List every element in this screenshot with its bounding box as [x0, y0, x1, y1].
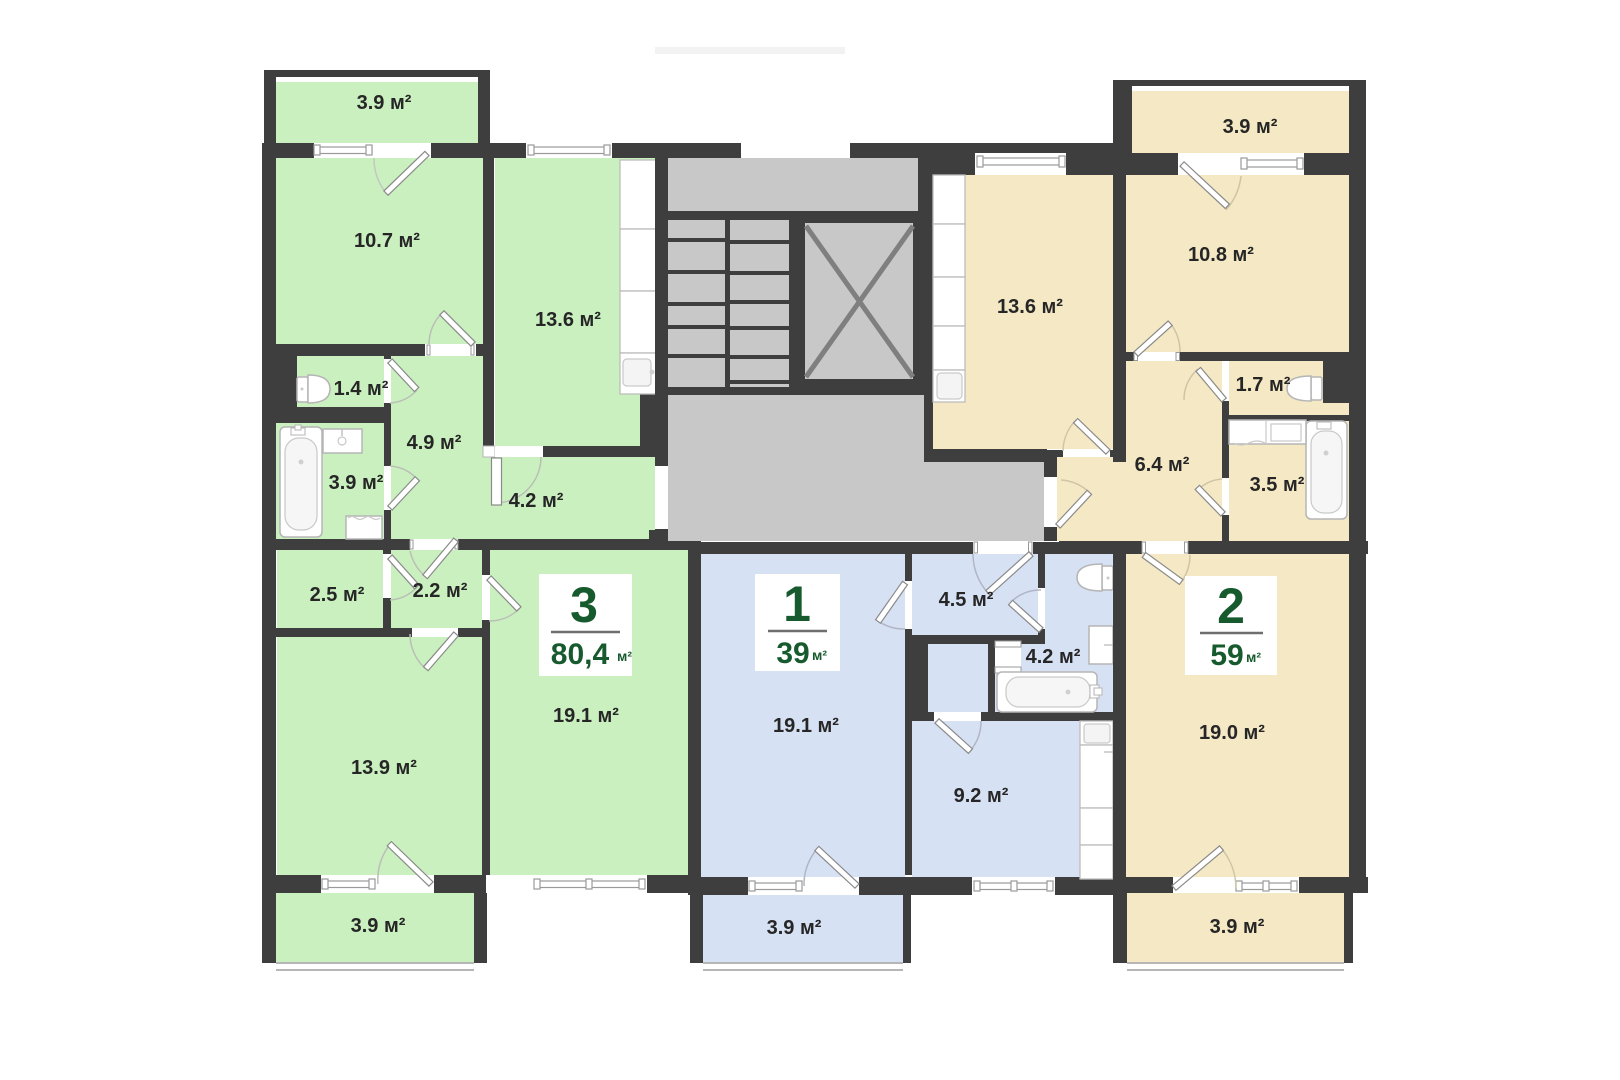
- svg-text:3.9 м²: 3.9 м²: [329, 472, 384, 494]
- svg-text:2.2 м²: 2.2 м²: [413, 580, 468, 602]
- svg-text:13.9 м²: 13.9 м²: [351, 757, 417, 779]
- svg-text:13.6 м²: 13.6 м²: [997, 296, 1063, 318]
- svg-text:м²: м²: [812, 647, 827, 663]
- svg-text:3: 3: [570, 577, 598, 633]
- svg-text:4.2 м²: 4.2 м²: [1026, 646, 1081, 668]
- svg-text:10.7 м²: 10.7 м²: [354, 230, 420, 252]
- svg-text:19.1 м²: 19.1 м²: [773, 715, 839, 737]
- svg-text:1.7 м²: 1.7 м²: [1236, 374, 1291, 396]
- svg-text:2: 2: [1217, 578, 1245, 634]
- svg-text:м²: м²: [1246, 649, 1261, 665]
- svg-text:9.2 м²: 9.2 м²: [954, 785, 1009, 807]
- svg-text:4.9 м²: 4.9 м²: [407, 432, 462, 454]
- svg-text:4.5 м²: 4.5 м²: [939, 589, 994, 611]
- svg-text:80,4: 80,4: [551, 638, 610, 671]
- svg-text:3.9 м²: 3.9 м²: [767, 917, 822, 939]
- svg-text:39: 39: [776, 637, 809, 670]
- svg-text:3.9 м²: 3.9 м²: [357, 92, 412, 114]
- svg-text:59: 59: [1210, 639, 1243, 672]
- svg-text:2.5 м²: 2.5 м²: [310, 584, 365, 606]
- svg-text:19.1 м²: 19.1 м²: [553, 705, 619, 727]
- svg-text:19.0 м²: 19.0 м²: [1199, 722, 1265, 744]
- svg-text:1.4 м²: 1.4 м²: [334, 378, 389, 400]
- svg-text:1: 1: [783, 576, 811, 632]
- svg-text:13.6 м²: 13.6 м²: [535, 309, 601, 331]
- svg-text:3.9 м²: 3.9 м²: [1210, 916, 1265, 938]
- svg-text:10.8 м²: 10.8 м²: [1188, 244, 1254, 266]
- svg-text:6.4 м²: 6.4 м²: [1135, 454, 1190, 476]
- svg-text:3.5 м²: 3.5 м²: [1250, 474, 1305, 496]
- svg-text:3.9 м²: 3.9 м²: [1223, 116, 1278, 138]
- svg-text:3.9 м²: 3.9 м²: [351, 915, 406, 937]
- svg-text:м²: м²: [617, 648, 632, 664]
- svg-text:4.2 м²: 4.2 м²: [509, 490, 564, 512]
